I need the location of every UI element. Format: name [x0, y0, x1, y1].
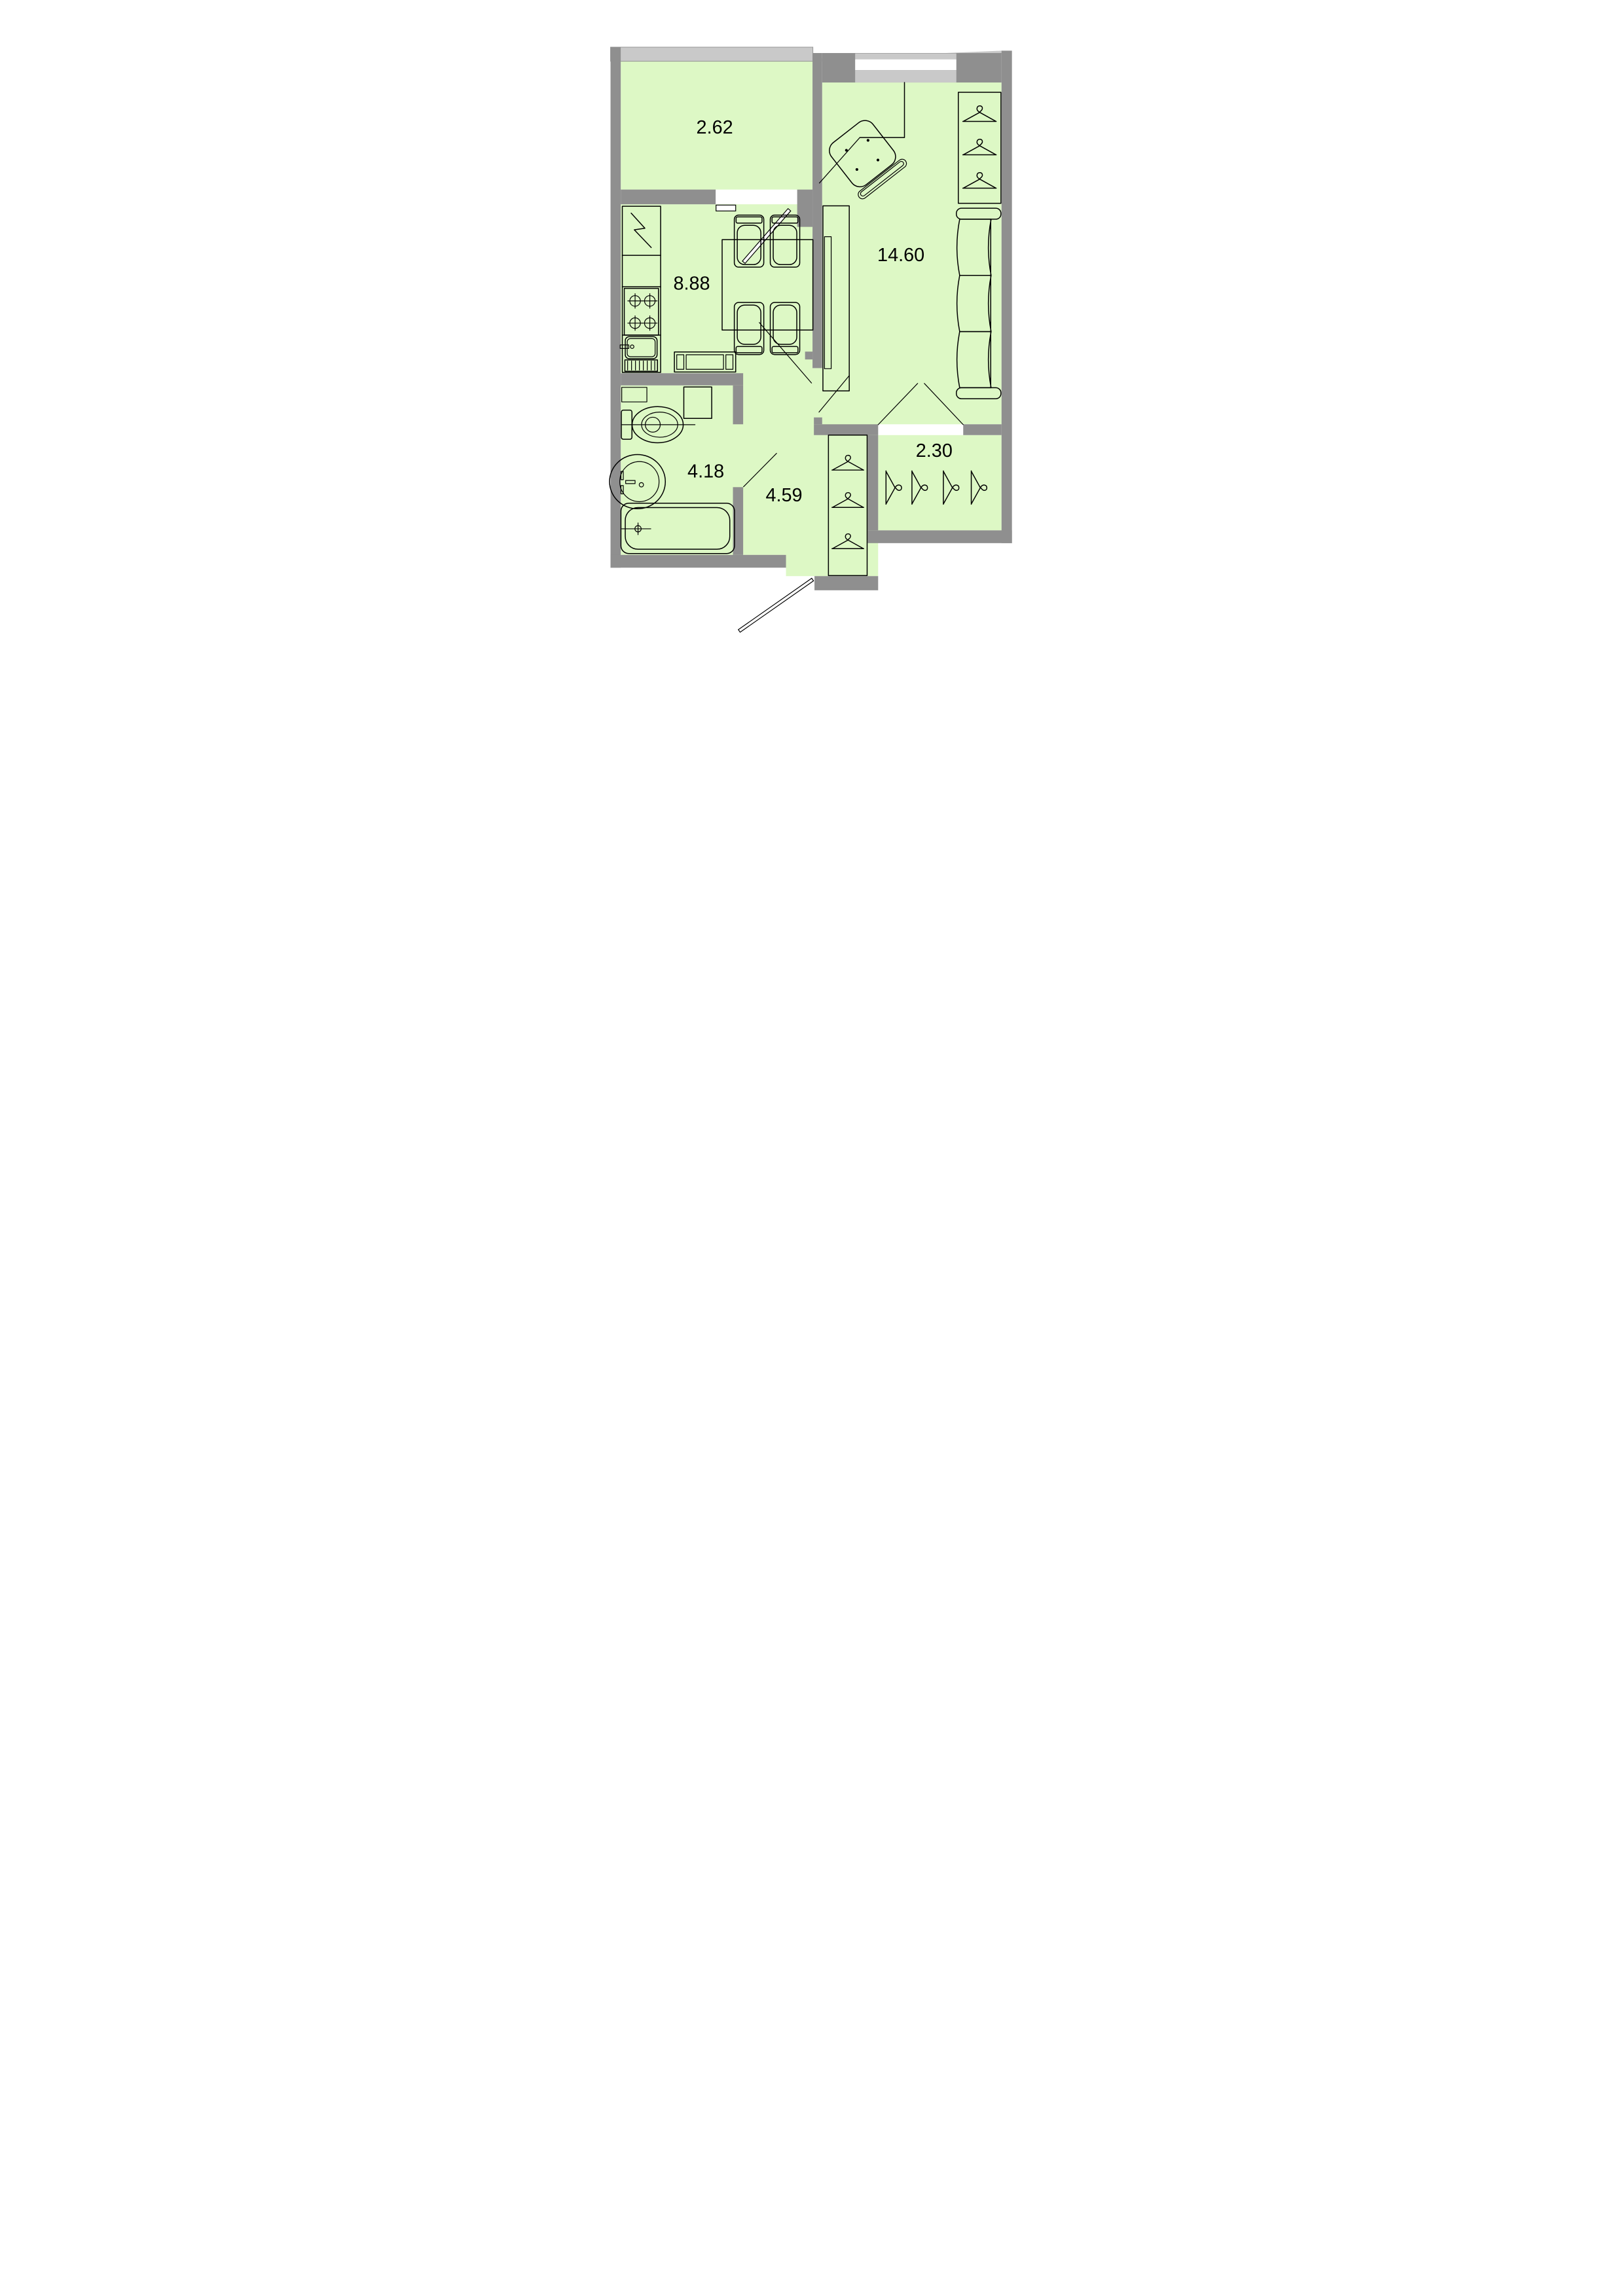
wall-bathroom-top: [621, 373, 743, 386]
entrance-door-icon: [738, 579, 813, 632]
wall-bottom-left: [610, 555, 786, 568]
window-icon: [855, 54, 957, 82]
room-floors: [621, 62, 1002, 577]
bathroom-area-label: 4.18: [687, 461, 724, 482]
balcony-rail: [610, 47, 812, 62]
wall-wardrobe-closet-divider: [867, 435, 878, 531]
wall-kitchen-living-divider: [812, 53, 822, 368]
wall-closet-bottom: [867, 530, 1012, 543]
wall-bottom-entry: [814, 576, 878, 590]
closet-area-label: 2.30: [915, 440, 952, 461]
floor-plan-page: 2.62 8.88 14.60 4.18 4.59 2.30: [568, 0, 1055, 689]
balcony-area-label: 2.62: [696, 117, 733, 138]
wall-right: [1001, 50, 1012, 543]
wall-kitchen-door-jamb: [805, 351, 812, 359]
wall-closet-top-right: [963, 424, 1002, 435]
wall-balcony-bottom: [621, 190, 716, 205]
wall-left: [610, 47, 621, 567]
hallway-area-label: 4.59: [765, 485, 802, 506]
kitchen-area-label: 8.88: [673, 274, 710, 295]
wall-bathroom-right-upper: [733, 386, 743, 424]
living-room-area-label: 14.60: [877, 245, 924, 266]
balcony-window-icon: [716, 205, 735, 211]
wall-hallway-notch: [814, 418, 822, 425]
wall-hallway-top-left: [814, 424, 878, 435]
floor-plan-svg: 2.62 8.88 14.60 4.18 4.59 2.30: [568, 0, 1055, 689]
